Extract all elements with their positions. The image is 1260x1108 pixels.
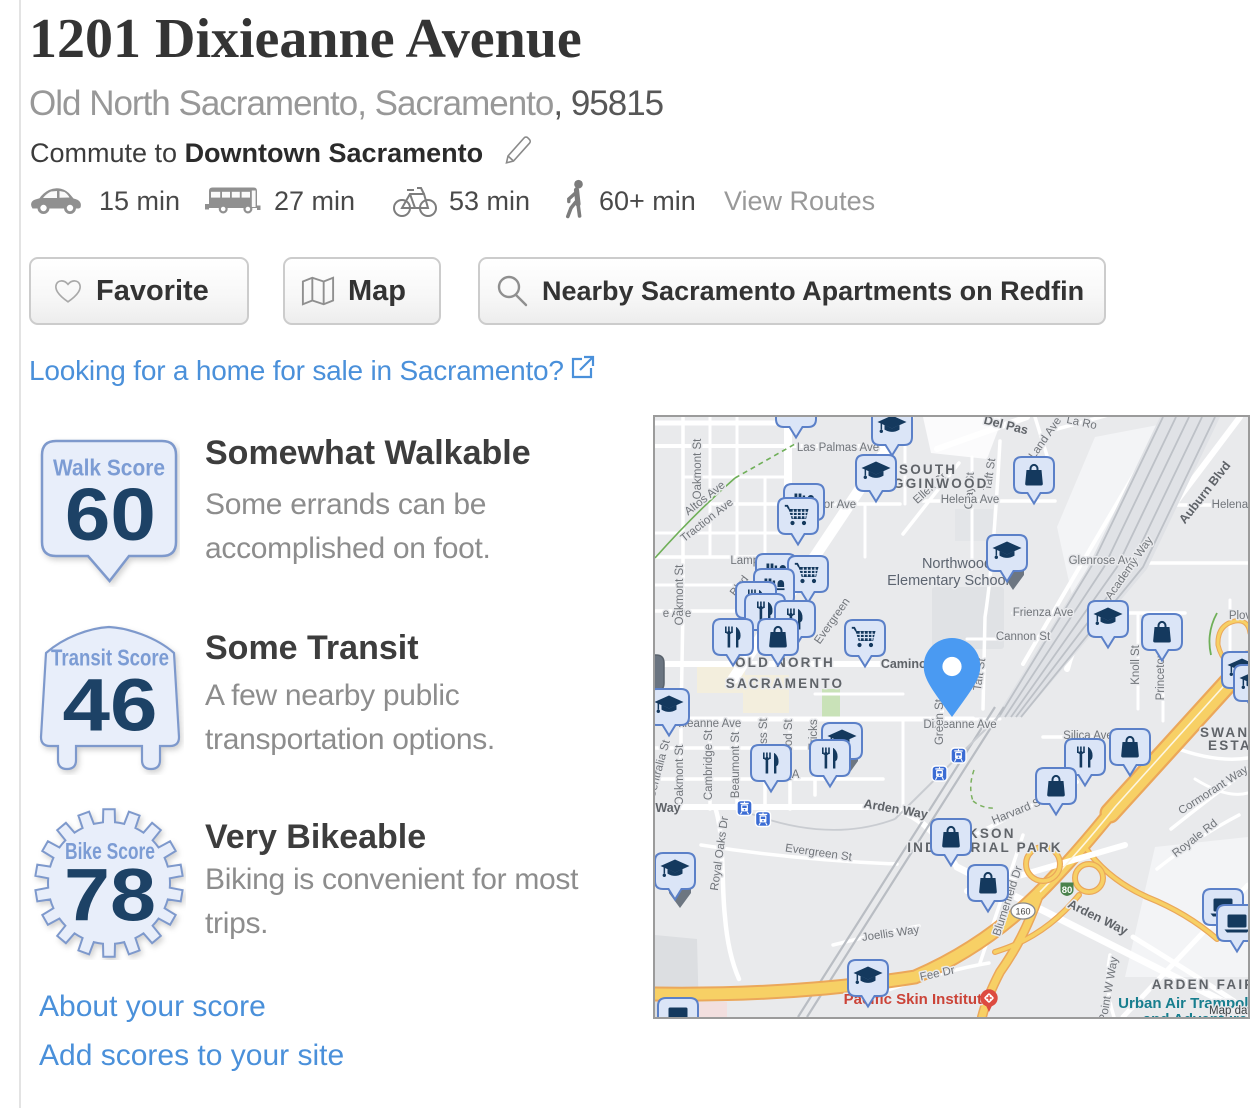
svg-text:Helena Ave: Helena Ave (941, 494, 1000, 506)
svg-text:Knoll St: Knoll St (1130, 644, 1142, 684)
svg-text:Las Palmas Ave: Las Palmas Ave (797, 442, 879, 454)
svg-text:ESTATES: ESTATES (1208, 738, 1248, 753)
svg-text:160: 160 (1015, 907, 1030, 917)
svg-text:60: 60 (65, 473, 156, 556)
svg-text:46: 46 (63, 663, 158, 746)
svg-text:Frienza Ave: Frienza Ave (1013, 607, 1074, 619)
svg-text:or Ave: or Ave (824, 499, 856, 511)
svg-text:Helena A: Helena A (1212, 499, 1248, 511)
svg-text:78: 78 (64, 854, 156, 937)
svg-text:SOUTH: SOUTH (899, 462, 957, 477)
svg-text:Plov: Plov (1229, 610, 1248, 622)
svg-text:GGINWOOD: GGINWOOD (893, 476, 989, 491)
svg-text:ARDEN FAIR: ARDEN FAIR (1152, 977, 1248, 992)
svg-text:Northwood: Northwood (922, 556, 992, 572)
svg-text:Elementary School: Elementary School (887, 573, 1009, 589)
svg-text:Cannon St: Cannon St (996, 631, 1051, 643)
svg-text:Map data: Map data (1209, 1005, 1248, 1017)
svg-text:Way: Way (655, 801, 680, 815)
svg-text:Oakmont St: Oakmont St (674, 744, 686, 806)
svg-text:80: 80 (1062, 885, 1073, 896)
svg-text:SACRAMENTO: SACRAMENTO (726, 676, 845, 691)
svg-text:Cambridge St: Cambridge St (703, 729, 715, 800)
svg-text:Oakmont St: Oakmont St (674, 564, 686, 626)
svg-text:OLD NORTH: OLD NORTH (735, 655, 835, 670)
svg-text:Beaumont St: Beaumont St (730, 731, 742, 798)
svg-text:Oakmont St: Oakmont St (692, 438, 704, 500)
